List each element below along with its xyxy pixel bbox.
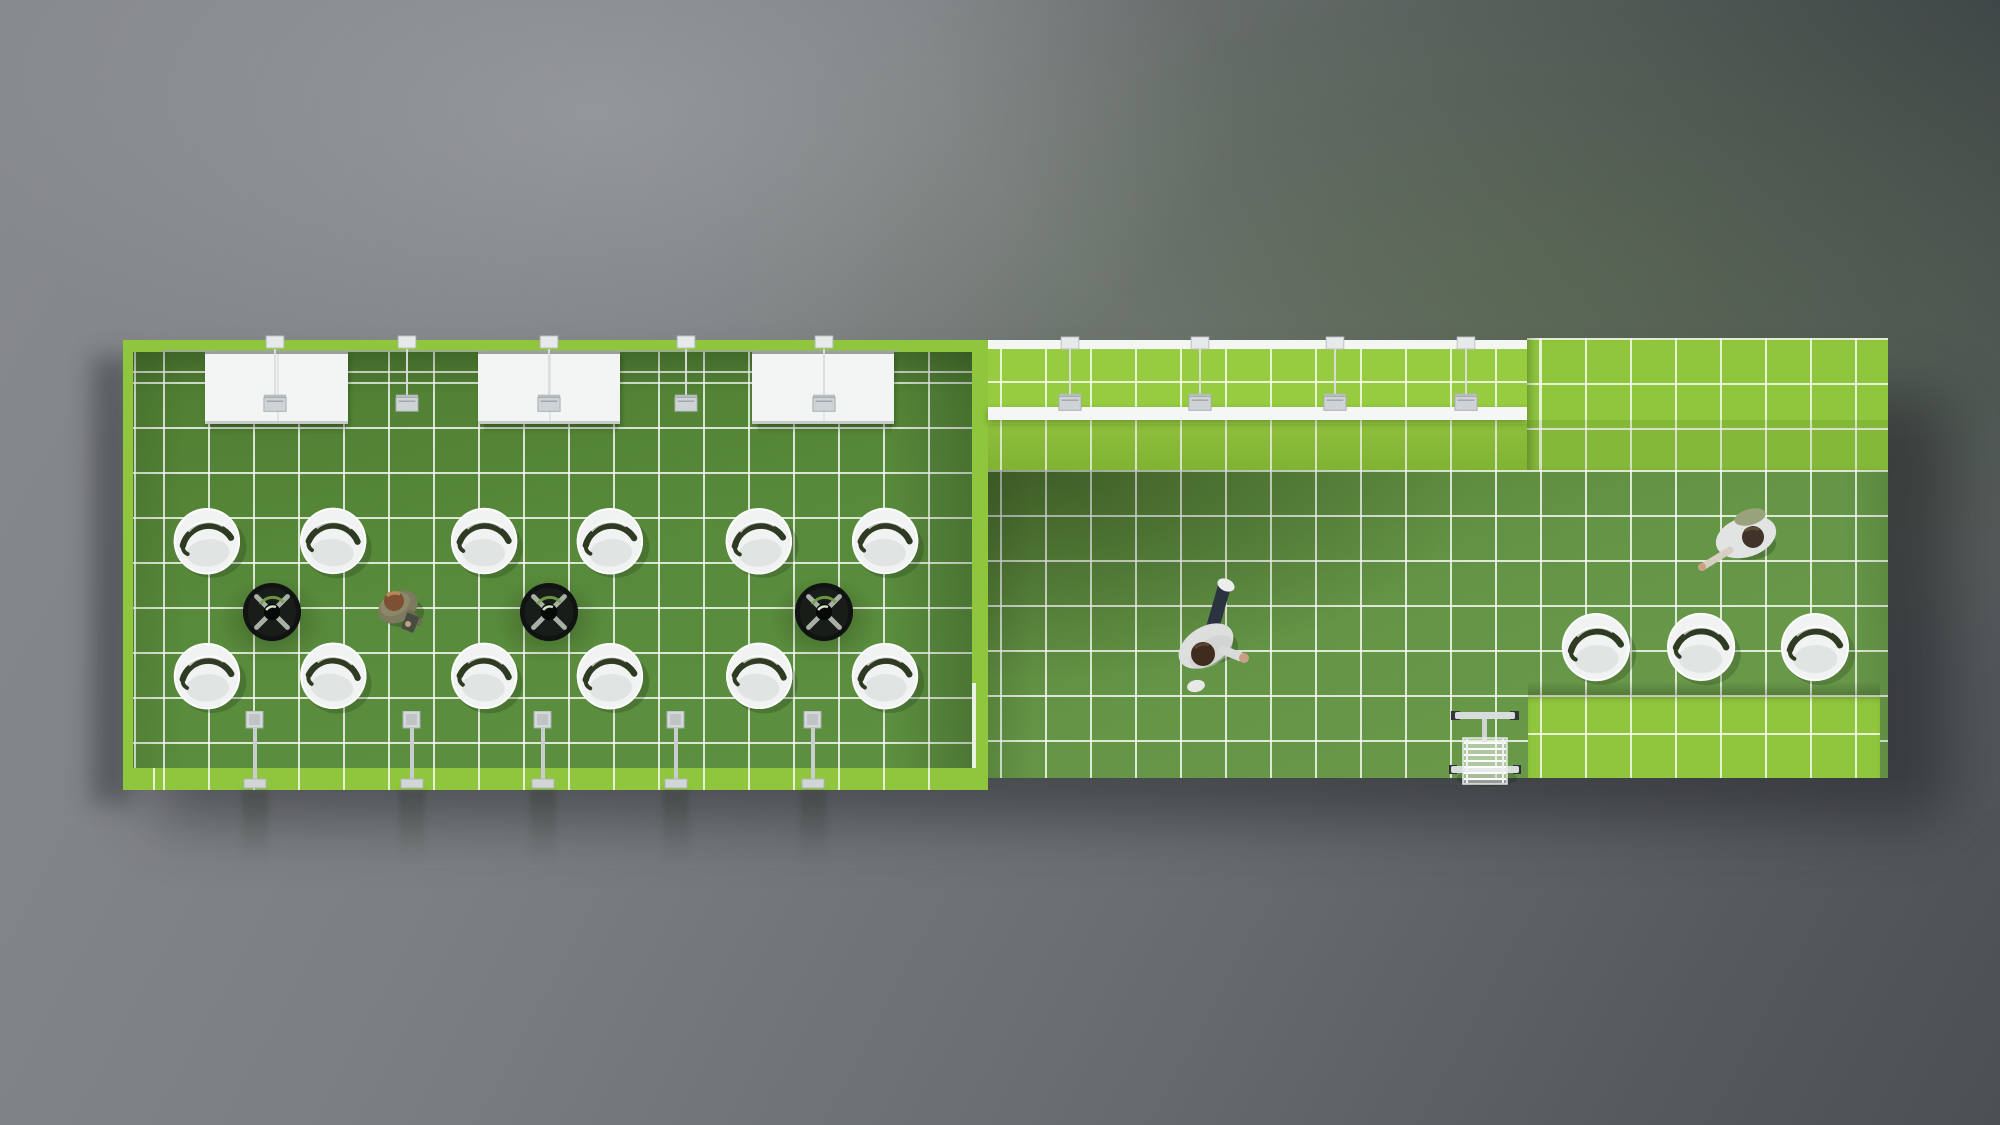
ceiling-mount [1326,337,1345,350]
fixture-shadow-streak [399,790,425,875]
lamp-cord [823,349,825,395]
tub-chair-icon [1661,607,1745,691]
visitor-standing-icon [1690,495,1800,585]
ceiling-mount-icon [677,336,696,349]
pendant-lamp [1323,393,1347,412]
ceiling-mount-icon [815,336,834,349]
fixture-shadow-streak [242,790,268,875]
pendant-lamp-icon [1058,393,1082,412]
tub-chair-icon [1555,606,1640,691]
tub-chair-icon [166,500,252,586]
meeting-room-border-left [123,340,133,790]
lamp-cord [274,349,276,395]
lamp-cord [1199,349,1201,394]
ceiling-mount-icon [266,336,285,349]
spotlight-fixture-icon [664,711,688,789]
pendant-lamp-icon [1323,393,1347,412]
ceiling-mount [1061,337,1080,350]
ceiling-mount-icon [1061,337,1080,350]
lamp-cord [685,349,687,395]
service-cart-icon [1449,704,1521,790]
coffee-table-icon [793,581,855,643]
pendant-lamp-icon [674,394,698,413]
coffee-table [518,581,580,643]
pendant-lamp [1058,393,1082,412]
tub-chair-icon [847,638,928,719]
tub-chair-icon [446,503,527,584]
pendant-lamp-icon [395,394,419,413]
ceiling-mount [1191,337,1210,350]
spotlight-fixture [801,711,825,789]
tub-chair [444,636,529,721]
pendant-lamp [537,394,561,413]
spotlight-fixture-icon [243,711,267,789]
spotlight-fixture-icon [400,711,424,789]
spotlight-fixture [664,711,688,789]
coffee-table-icon [518,581,580,643]
pendant-lamp-icon [1188,393,1212,412]
tub-chair [847,638,928,719]
tub-chair-icon [718,500,805,587]
tub-chair [846,502,928,584]
ceiling-mount [398,336,417,349]
visitor-with-tablet [364,570,434,640]
tub-chair [168,637,250,719]
visitor-standing [1690,495,1800,585]
platform-bottom-right [1528,695,1880,778]
visitor-walking [1159,576,1259,696]
ceiling-mount [815,336,834,349]
pendant-lamp-icon [263,394,287,413]
spotlight-fixture-icon [801,711,825,789]
pendant-lamp [1188,393,1212,412]
tub-chair [570,501,655,586]
tub-chair-icon [168,637,250,719]
tub-chair-icon [570,636,653,719]
tub-chair [166,500,252,586]
pendant-lamp-icon [812,394,836,413]
ceiling-mount-icon [540,336,559,349]
ceiling-mount [677,336,696,349]
fixture-shadow-streak [800,790,826,875]
pendant-lamp [812,394,836,413]
tub-chair-icon [292,635,379,722]
tub-chair-icon [846,502,928,584]
fixture-shadow-streak [663,790,689,875]
lamp-cord [1069,349,1071,394]
tub-chair [292,635,379,722]
service-cart [1449,704,1521,790]
divider-trim [972,683,976,768]
pendant-lamp-icon [1454,393,1478,412]
lamp-cord [548,349,550,395]
lamp-cord [1465,349,1467,394]
coffee-table-icon [241,581,303,643]
ceiling-mount-icon [1457,337,1476,350]
ceiling-mount-icon [398,336,417,349]
ceiling-mount-icon [1191,337,1210,350]
ceiling-mount-icon [1326,337,1345,350]
lamp-cord [1334,349,1336,394]
lamp-cord [406,349,408,395]
tub-chair-icon [570,501,655,586]
tub-chair-icon [718,635,804,721]
spotlight-fixture [531,711,555,789]
ceiling-mount [540,336,559,349]
platform-top-right [1527,338,1888,470]
exhibition-stand-render [0,0,2000,1125]
fixture-shadow-streak [530,790,556,875]
tub-chair-icon [444,636,529,721]
tub-chair [446,503,527,584]
tub-chair [718,635,804,721]
tub-chair-icon [1776,608,1859,691]
pendant-lamp [395,394,419,413]
pendant-lamp-icon [537,394,561,413]
tub-chair [1555,606,1640,691]
storage-cabinet [205,352,348,424]
ceiling-mount [1457,337,1476,350]
coffee-table [241,581,303,643]
pendant-lamp [674,394,698,413]
pendant-lamp [1454,393,1478,412]
visitor-walking-icon [1159,576,1259,696]
tub-chair [718,500,805,587]
tub-chair [1661,607,1745,691]
tub-chair [1776,608,1859,691]
spotlight-fixture-icon [531,711,555,789]
ceiling-mount [266,336,285,349]
visitor-with-tablet-icon [364,570,434,640]
spotlight-fixture [243,711,267,789]
coffee-table [793,581,855,643]
tub-chair [570,636,653,719]
spotlight-fixture [400,711,424,789]
pendant-lamp [263,394,287,413]
